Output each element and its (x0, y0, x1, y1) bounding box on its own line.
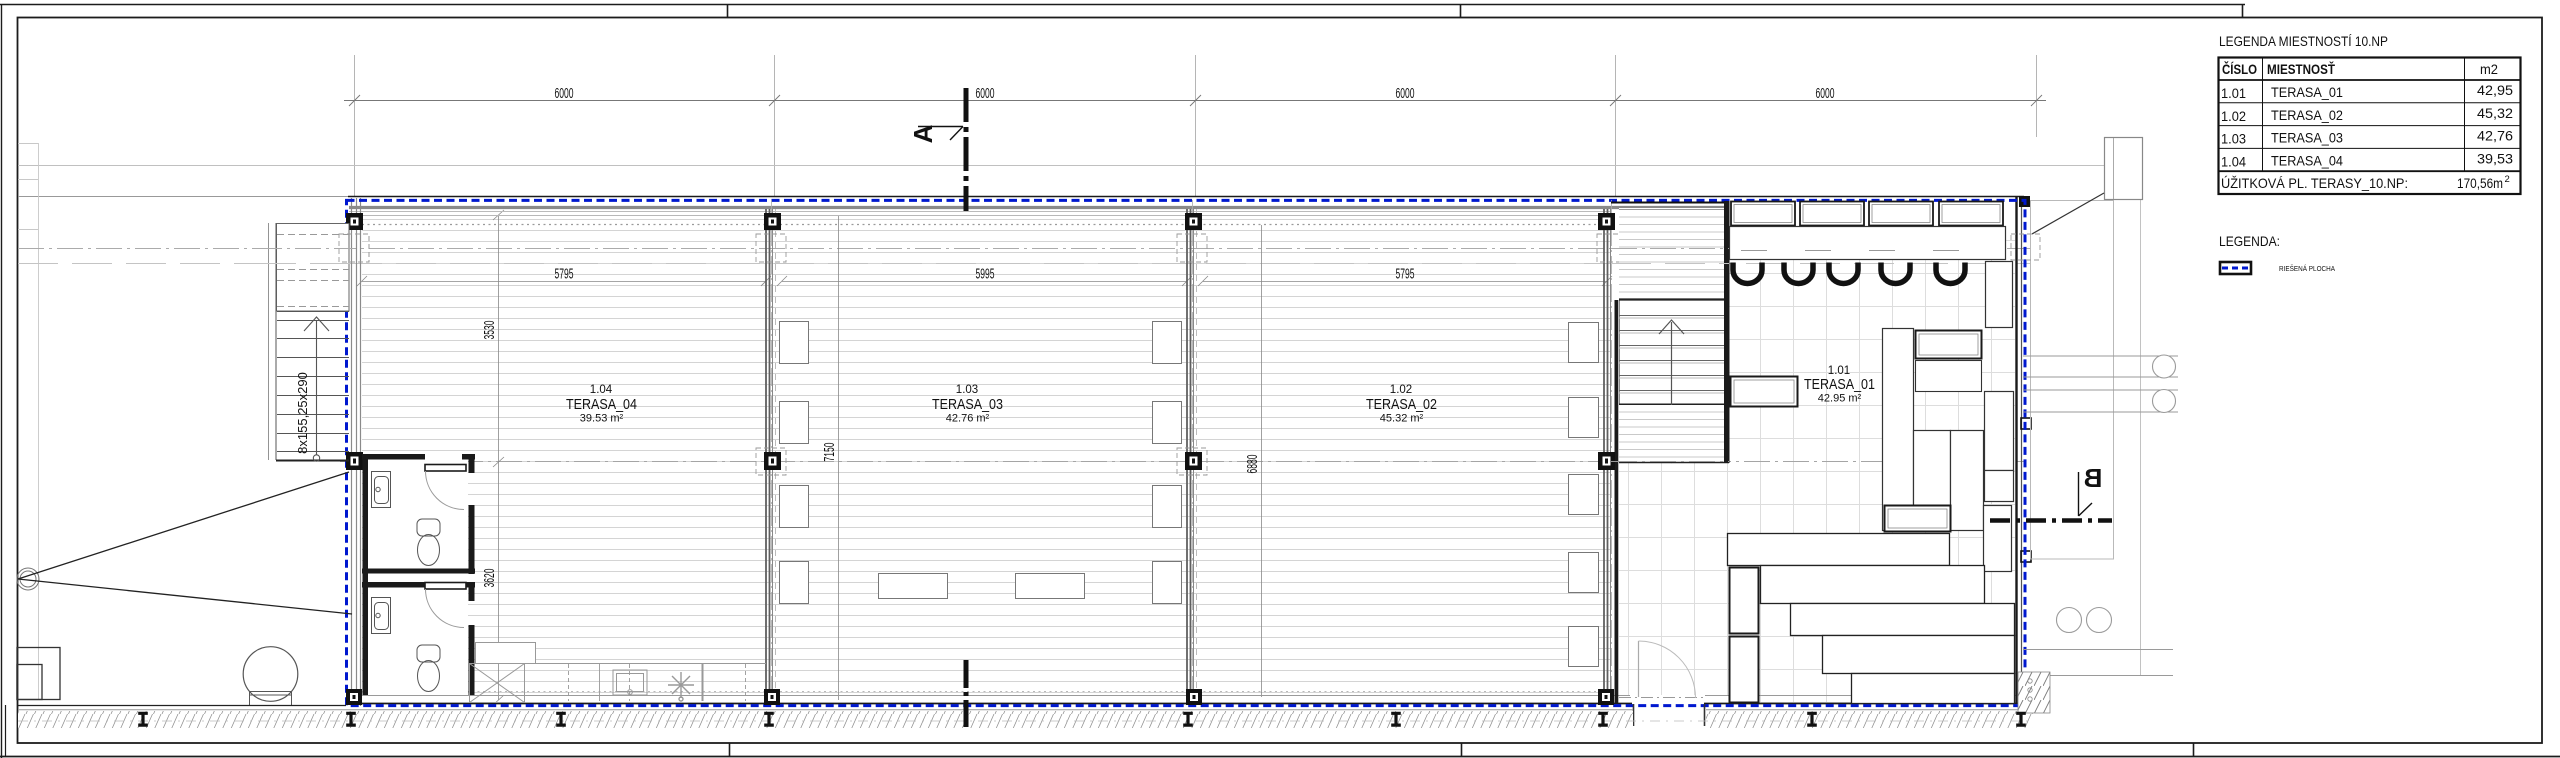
svg-text:1.04: 1.04 (590, 384, 613, 396)
svg-text:TERASA_02: TERASA_02 (1366, 397, 1437, 413)
svg-text:A: A (908, 124, 938, 143)
svg-text:6000: 6000 (1396, 86, 1415, 102)
svg-text:1.04: 1.04 (2221, 154, 2246, 169)
svg-text:3530: 3530 (482, 321, 498, 340)
svg-text:1.03: 1.03 (956, 384, 978, 396)
svg-text:TERASA_04: TERASA_04 (2271, 152, 2343, 168)
svg-text:TERASA_04: TERASA_04 (566, 397, 637, 413)
svg-text:42.95 m²: 42.95 m² (1818, 393, 1862, 405)
svg-text:LEGENDA:: LEGENDA: (2219, 233, 2280, 249)
svg-text:2: 2 (2505, 174, 2510, 185)
svg-text:1.03: 1.03 (2221, 132, 2246, 147)
svg-text:TERASA_03: TERASA_03 (2271, 130, 2343, 146)
svg-text:1.01: 1.01 (1828, 365, 1850, 377)
svg-text:RIEŠENÁ PLOCHA: RIEŠENÁ PLOCHA (2279, 264, 2335, 273)
svg-text:1.01: 1.01 (2221, 86, 2246, 101)
svg-text:42.76 m²: 42.76 m² (946, 413, 990, 425)
svg-text:39,53: 39,53 (2477, 150, 2513, 166)
svg-text:1.02: 1.02 (2221, 109, 2246, 124)
svg-text:170,56m: 170,56m (2457, 175, 2503, 191)
svg-text:LEGENDA MIESTNOSTÍ 10.NP: LEGENDA MIESTNOSTÍ 10.NP (2219, 33, 2388, 49)
svg-text:5795: 5795 (1396, 267, 1415, 283)
svg-text:ÚŽITKOVÁ PL. TERASY_10.NP:: ÚŽITKOVÁ PL. TERASY_10.NP: (2221, 175, 2408, 191)
svg-text:45.32 m²: 45.32 m² (1380, 413, 1424, 425)
svg-text:7150: 7150 (822, 443, 838, 462)
svg-text:3620: 3620 (482, 569, 498, 588)
svg-text:TERASA_01: TERASA_01 (1804, 377, 1875, 393)
svg-text:TERASA_03: TERASA_03 (932, 397, 1003, 413)
svg-text:6000: 6000 (1816, 86, 1835, 102)
svg-text:TERASA_02: TERASA_02 (2271, 107, 2343, 123)
svg-text:5995: 5995 (976, 267, 995, 283)
svg-text:6000: 6000 (555, 86, 574, 102)
svg-text:1.02: 1.02 (1390, 384, 1412, 396)
svg-text:6880: 6880 (1245, 455, 1261, 474)
svg-text:5795: 5795 (555, 267, 574, 283)
svg-text:42,76: 42,76 (2477, 128, 2513, 144)
svg-text:m2: m2 (2480, 61, 2498, 77)
svg-text:TERASA_01: TERASA_01 (2271, 84, 2343, 100)
svg-text:39.53 m²: 39.53 m² (580, 413, 624, 425)
svg-text:42,95: 42,95 (2477, 82, 2513, 98)
svg-text:8x155,25x290: 8x155,25x290 (295, 372, 310, 454)
svg-text:6000: 6000 (976, 86, 995, 102)
svg-text:ČÍSLO: ČÍSLO (2222, 60, 2257, 77)
svg-text:B: B (2084, 463, 2103, 493)
svg-text:45,32: 45,32 (2477, 105, 2513, 121)
svg-text:MIESTNOSŤ: MIESTNOSŤ (2267, 60, 2335, 77)
